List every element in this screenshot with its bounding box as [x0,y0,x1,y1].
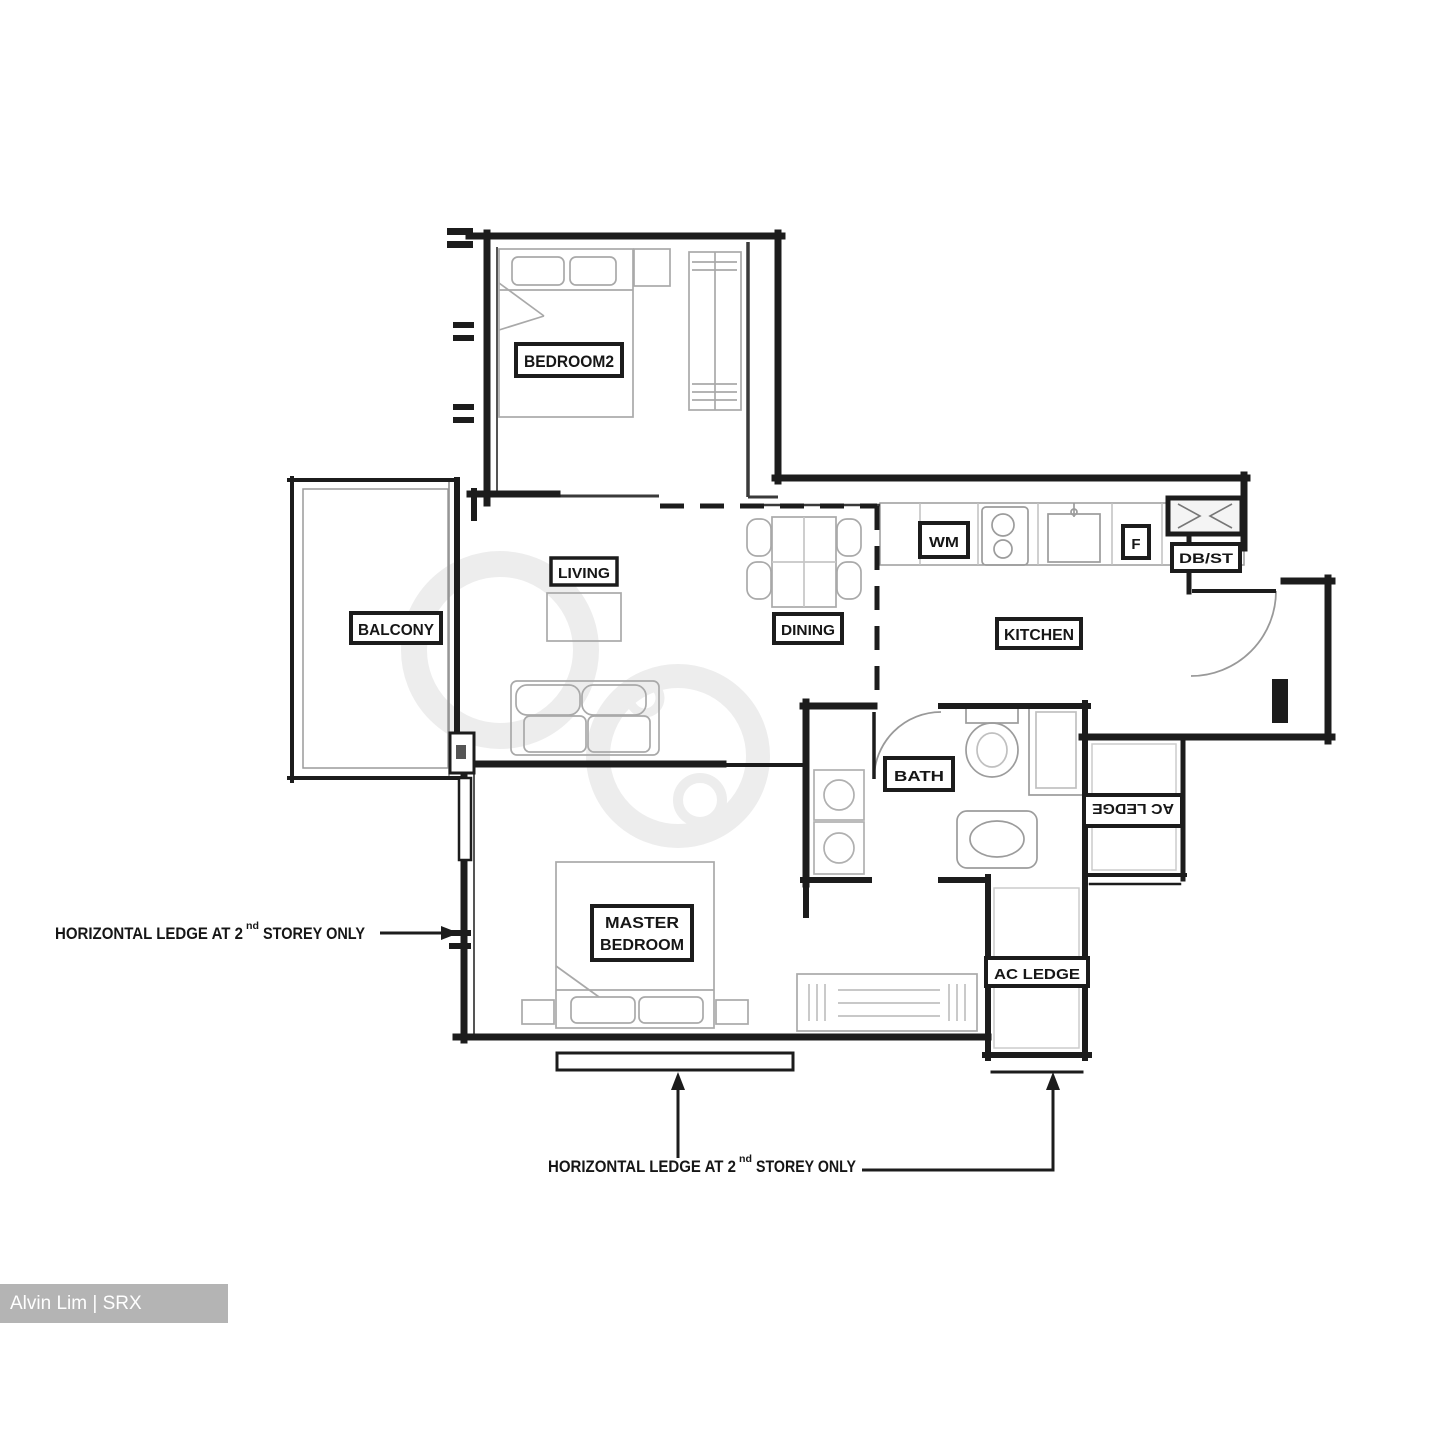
basin-icon [957,811,1037,868]
svg-text:KITCHEN: KITCHEN [1004,627,1074,644]
fixture-label-fridge: F [1123,526,1149,558]
room-label-dining: DINING [774,614,842,643]
room-label-master-bedroom: MASTER BEDROOM [592,906,692,960]
arrow-up-icon [1046,1072,1060,1090]
stove-icon [982,507,1028,565]
svg-text:WM: WM [929,534,959,551]
room-label-bedroom2: BEDROOM2 [516,344,622,376]
entry-door-arc [1191,591,1276,676]
svg-text:STOREY ONLY: STOREY ONLY [263,925,365,943]
bedroom2-bed-icon [499,249,633,417]
vanity-icon [814,770,864,874]
svg-text:STOREY ONLY: STOREY ONLY [756,1158,856,1176]
svg-text:BATH: BATH [894,768,944,785]
svg-text:MASTER: MASTER [605,915,679,932]
toilet-icon [966,707,1018,777]
room-label-kitchen: KITCHEN [997,619,1081,648]
walls [289,233,1332,1072]
room-label-living: LIVING [551,558,617,585]
shower-icon [1029,705,1083,795]
entry-column [1272,679,1288,723]
svg-text:BEDROOM: BEDROOM [600,937,684,954]
svg-text:AC LEDGE: AC LEDGE [994,966,1080,983]
annotation-bottom: HORIZONTAL LEDGE AT 2 nd STOREY ONLY [548,1072,1060,1176]
svg-text:DINING: DINING [781,622,835,639]
room-label-balcony: BALCONY [351,613,441,643]
floor-plan-drawing: BEDROOM2 BALCONY LIVING DINING KITCHEN B… [0,0,1440,1429]
fixture-label-wm: WM [920,523,968,557]
kitchen-sink-icon [1048,503,1100,562]
db-st-cabinet [1168,498,1242,534]
floor-plan-page: BEDROOM2 BALCONY LIVING DINING KITCHEN B… [0,0,1440,1429]
room-label-ac-ledge-bottom: AC LEDGE [986,958,1088,986]
room-label-bath: BATH [885,758,953,790]
sliding-door-junction [450,733,474,860]
svg-text:F: F [1131,536,1140,553]
fixture-label-db-st: DB/ST [1172,544,1240,571]
room-label-ac-ledge-side: AC LEDGE [1084,795,1182,826]
dining-table-icon [747,517,861,607]
svg-text:HORIZONTAL LEDGE AT 2: HORIZONTAL LEDGE AT 2 [55,925,243,943]
arrow-right-icon [441,926,459,940]
annotation-left: HORIZONTAL LEDGE AT 2 nd STOREY ONLY [55,920,459,943]
svg-text:nd: nd [246,920,259,932]
svg-text:BEDROOM2: BEDROOM2 [524,352,614,371]
master-dresser-icon [797,974,977,1031]
bedroom2-nightstand-icon [634,249,670,286]
svg-text:BALCONY: BALCONY [358,622,434,639]
svg-text:nd: nd [739,1153,752,1165]
arrow-up-icon [671,1072,685,1090]
svg-text:HORIZONTAL LEDGE AT 2: HORIZONTAL LEDGE AT 2 [548,1158,736,1176]
credit-watermark: Alvin Lim | SRX PROPERTY [0,1284,228,1323]
svg-text:AC LEDGE: AC LEDGE [1092,800,1174,816]
bedroom2-wardrobe-icon [689,252,741,410]
svg-text:LIVING: LIVING [558,565,610,582]
svg-text:DB/ST: DB/ST [1179,551,1234,566]
